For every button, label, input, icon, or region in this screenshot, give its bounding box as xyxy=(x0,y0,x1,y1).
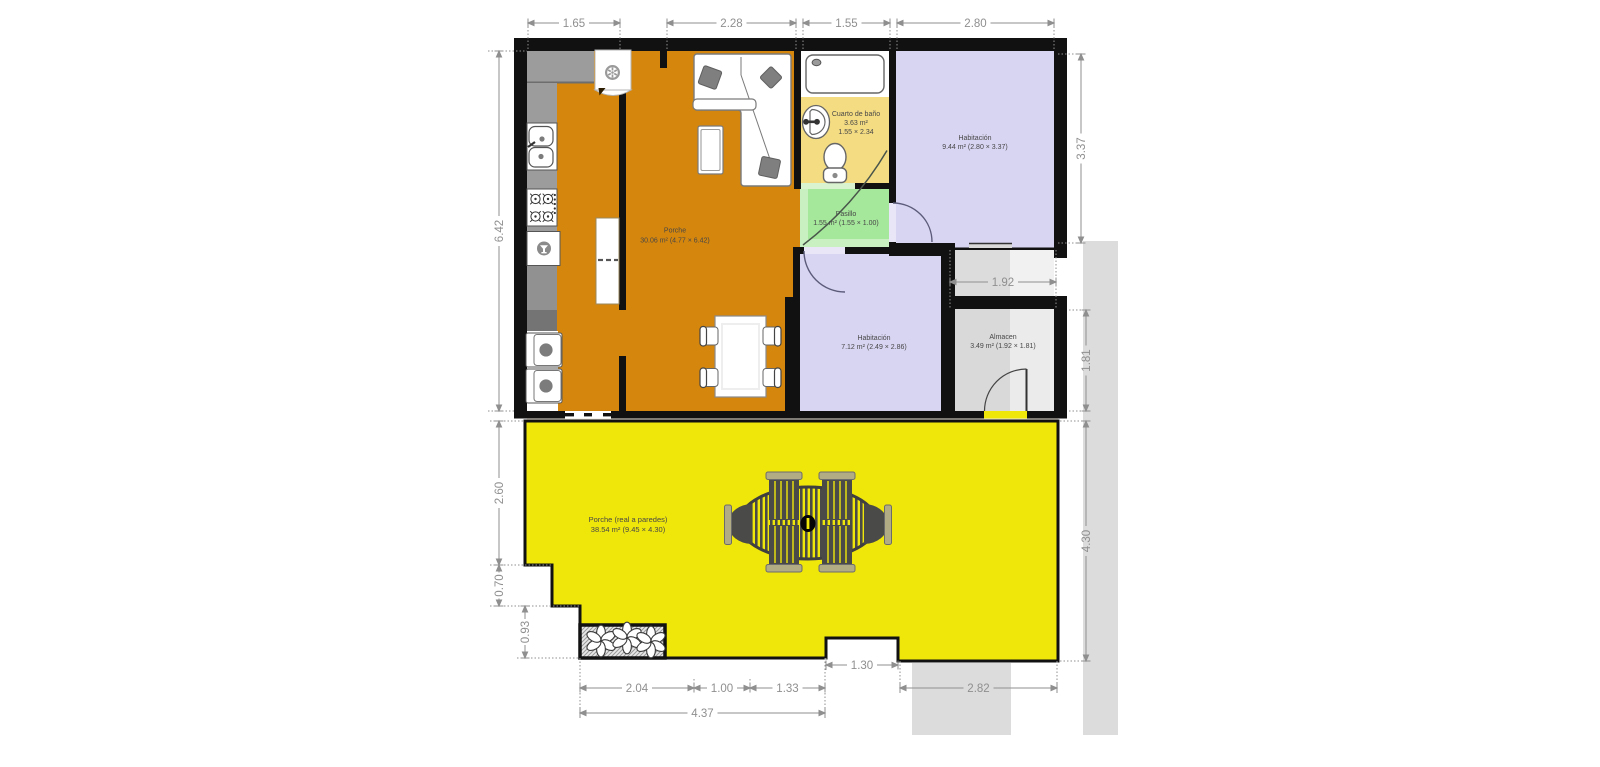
svg-text:38.54 m² (9.45 × 4.30): 38.54 m² (9.45 × 4.30) xyxy=(591,525,666,534)
svg-text:0.93: 0.93 xyxy=(520,621,532,643)
svg-text:Porche: Porche xyxy=(664,228,686,235)
svg-text:1.81: 1.81 xyxy=(1081,349,1093,371)
svg-text:4.37: 4.37 xyxy=(691,708,713,720)
svg-text:2.82: 2.82 xyxy=(967,683,989,695)
svg-text:Habitación: Habitación xyxy=(857,335,890,342)
svg-text:6.42: 6.42 xyxy=(494,220,506,242)
svg-text:Pasillo: Pasillo xyxy=(836,211,857,218)
svg-text:2.80: 2.80 xyxy=(964,18,986,30)
svg-text:1.00: 1.00 xyxy=(711,683,733,695)
svg-text:1.55 m² (1.55 × 1.00): 1.55 m² (1.55 × 1.00) xyxy=(813,220,879,227)
svg-text:Porche (real a paredes): Porche (real a paredes) xyxy=(589,515,668,524)
svg-text:9.44 m² (2.80 × 3.37): 9.44 m² (2.80 × 3.37) xyxy=(942,144,1008,151)
svg-text:2.04: 2.04 xyxy=(626,683,649,695)
svg-text:2.60: 2.60 xyxy=(494,482,506,504)
svg-text:4.30: 4.30 xyxy=(1081,530,1093,552)
svg-text:Almacen: Almacen xyxy=(989,334,1016,341)
svg-text:1.92: 1.92 xyxy=(992,277,1014,289)
svg-text:2.28: 2.28 xyxy=(720,18,742,30)
svg-text:1.55: 1.55 xyxy=(835,18,857,30)
svg-text:Habitación: Habitación xyxy=(958,135,991,142)
svg-text:7.12 m² (2.49 × 2.86): 7.12 m² (2.49 × 2.86) xyxy=(841,344,907,351)
svg-text:3.49 m² (1.92 × 1.81): 3.49 m² (1.92 × 1.81) xyxy=(970,343,1036,350)
svg-text:1.55 × 2.34: 1.55 × 2.34 xyxy=(838,129,873,136)
svg-text:0.70: 0.70 xyxy=(494,574,506,596)
svg-text:1.33: 1.33 xyxy=(776,683,798,695)
svg-text:Cuarto de baño: Cuarto de baño xyxy=(832,111,880,118)
svg-text:1.65: 1.65 xyxy=(563,18,585,30)
svg-text:1.30: 1.30 xyxy=(851,660,873,672)
svg-text:30.06 m² (4.77 × 6.42): 30.06 m² (4.77 × 6.42) xyxy=(640,238,709,245)
svg-text:3.63 m²: 3.63 m² xyxy=(844,120,868,127)
svg-text:3.37: 3.37 xyxy=(1076,137,1088,159)
